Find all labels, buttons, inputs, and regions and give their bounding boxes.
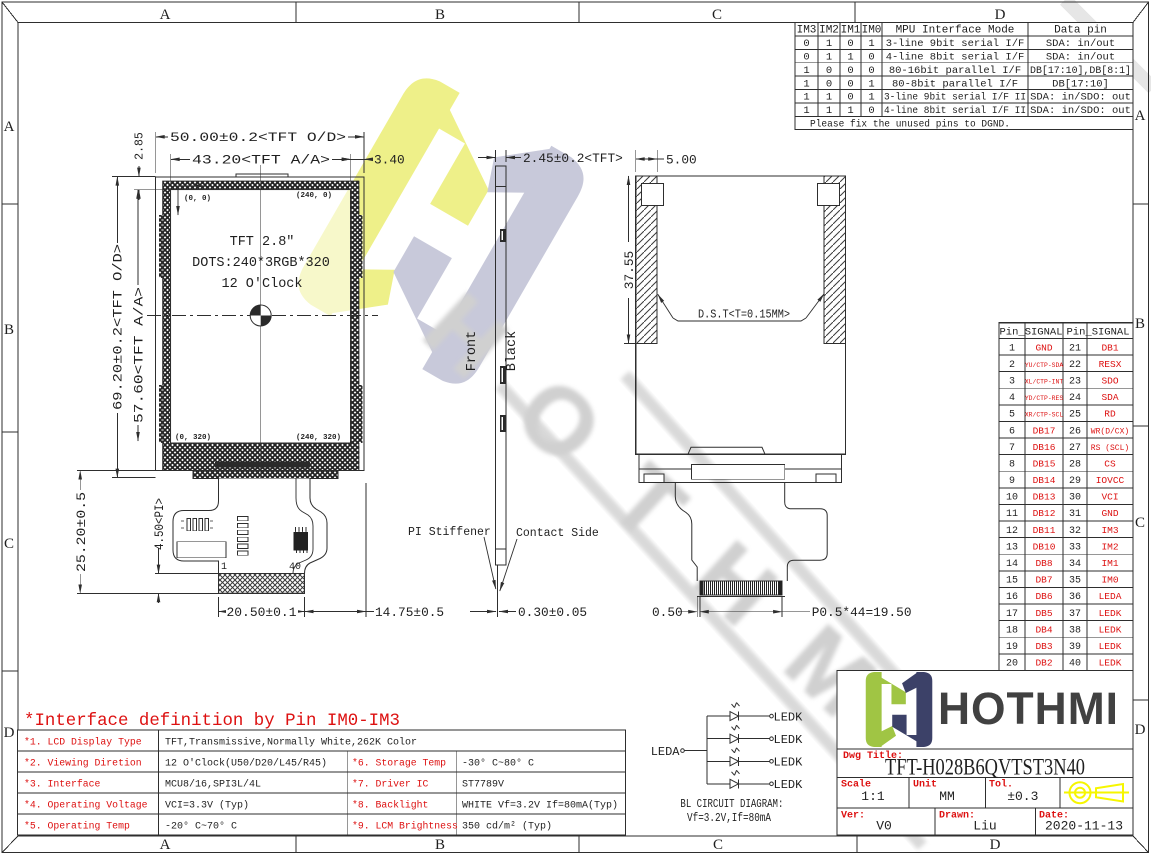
svg-text:HOTHMI: HOTHMI [938, 683, 1119, 734]
svg-text:YU/CTP-SDA: YU/CTP-SDA [1025, 362, 1064, 369]
svg-text:32: 32 [1069, 526, 1081, 537]
svg-text:12 O'Clock(U50/D20/L45/R45): 12 O'Clock(U50/D20/L45/R45) [165, 758, 327, 770]
svg-text:*3. Interface: *3. Interface [24, 779, 101, 790]
svg-text:1: 1 [847, 52, 853, 64]
svg-text:LEDK: LEDK [774, 756, 804, 770]
svg-text:1: 1 [826, 92, 832, 104]
svg-text:1: 1 [803, 78, 809, 90]
svg-text:DB[17:10]: DB[17:10] [1052, 78, 1109, 90]
svg-text:4: 4 [1009, 393, 1015, 404]
svg-text:A: A [160, 837, 171, 853]
svg-text:80-8bit parallel I/F: 80-8bit parallel I/F [892, 78, 1018, 90]
svg-text:LEDA: LEDA [651, 745, 681, 759]
svg-text:*9. LCM Brightness: *9. LCM Brightness [352, 821, 458, 832]
svg-text:0: 0 [803, 38, 809, 50]
svg-text:0.30±0.05: 0.30±0.05 [518, 605, 587, 620]
svg-text:XL/CTP-INT: XL/CTP-INT [1025, 378, 1064, 385]
svg-text:1: 1 [221, 562, 227, 573]
svg-text:1: 1 [847, 105, 853, 117]
svg-text:1: 1 [826, 52, 832, 64]
svg-text:(240, 0): (240, 0) [296, 192, 332, 200]
svg-text:D: D [4, 725, 15, 741]
svg-text:(240, 320): (240, 320) [296, 434, 341, 442]
svg-text:0: 0 [847, 78, 853, 90]
svg-text:VCI: VCI [1101, 492, 1118, 503]
svg-text:D.S.T<T=0.15MM>: D.S.T<T=0.15MM> [698, 309, 790, 322]
svg-text:1: 1 [868, 92, 874, 104]
svg-text:DB[17:10],DB[8:1]: DB[17:10],DB[8:1] [1030, 65, 1131, 77]
svg-text:27: 27 [1069, 443, 1081, 454]
svg-text:40: 40 [289, 562, 301, 573]
svg-text:57.60<TFT A/A>: 57.60<TFT A/A> [131, 287, 146, 423]
svg-text:MPU Interface Mode: MPU Interface Mode [896, 25, 1015, 37]
svg-text:V0: V0 [876, 819, 892, 834]
svg-text:Drawn:: Drawn: [939, 811, 975, 822]
svg-text:LEDK: LEDK [774, 733, 804, 747]
svg-text:Liu: Liu [973, 819, 996, 834]
svg-text:DB16: DB16 [1033, 442, 1056, 453]
svg-text:37.55: 37.55 [622, 251, 637, 289]
svg-text:14: 14 [1006, 559, 1018, 570]
svg-text:50.00±0.2<TFT O/D>: 50.00±0.2<TFT O/D> [170, 130, 346, 145]
svg-text:34: 34 [1069, 559, 1081, 570]
svg-text:26: 26 [1069, 426, 1081, 437]
svg-text:2.45±0.2<TFT>: 2.45±0.2<TFT> [523, 151, 623, 166]
svg-text:1: 1 [803, 92, 809, 104]
svg-text:Pin_SIGNAL: Pin_SIGNAL [1066, 327, 1129, 339]
svg-text:(0, 320): (0, 320) [175, 434, 211, 442]
svg-text:DB1: DB1 [1101, 342, 1118, 353]
svg-text:38: 38 [1069, 625, 1081, 636]
svg-text:(0, 0): (0, 0) [184, 195, 211, 203]
svg-text:DB15: DB15 [1033, 458, 1056, 469]
svg-text:40: 40 [1069, 659, 1081, 670]
svg-text:RS (SCL): RS (SCL) [1091, 444, 1129, 453]
svg-text:PI Stiffener: PI Stiffener [408, 526, 491, 539]
svg-text:*8. Backlight: *8. Backlight [352, 800, 428, 811]
svg-text:*6. Storage Temp: *6. Storage Temp [352, 758, 446, 769]
svg-text:6: 6 [1009, 426, 1015, 437]
svg-text:DB8: DB8 [1035, 558, 1052, 569]
svg-text:0: 0 [847, 38, 853, 50]
svg-text:12: 12 [1006, 526, 1018, 537]
svg-text:28: 28 [1069, 459, 1081, 470]
svg-text:Vf=3.2V,If=80mA: Vf=3.2V,If=80mA [687, 812, 771, 825]
svg-text:*Interface definition by Pin I: *Interface definition by Pin IM0-IM3 [24, 711, 400, 731]
svg-text:0: 0 [803, 52, 809, 64]
svg-text:15: 15 [1006, 576, 1018, 587]
svg-text:SDA: in/SDO: out: SDA: in/SDO: out [1030, 92, 1131, 104]
svg-text:WR(D/CX): WR(D/CX) [1091, 427, 1129, 436]
svg-text:SDA: in/SDO: out: SDA: in/SDO: out [1030, 105, 1131, 117]
svg-text:21: 21 [1069, 343, 1081, 354]
svg-text:4.50<PI>: 4.50<PI> [152, 498, 167, 550]
svg-text:SDA: in/out: SDA: in/out [1046, 52, 1115, 64]
svg-text:0: 0 [826, 78, 832, 90]
svg-text:SDO: SDO [1101, 375, 1118, 386]
svg-text:3: 3 [1009, 376, 1015, 387]
svg-text:TFT,Transmissive,Normally Whit: TFT,Transmissive,Normally White,262K Col… [165, 737, 417, 749]
svg-text:25.20±0.5: 25.20±0.5 [74, 492, 89, 572]
svg-text:-20° C~70° C: -20° C~70° C [165, 821, 237, 833]
svg-text:IOVCC: IOVCC [1096, 475, 1125, 486]
svg-text:ST7789V: ST7789V [462, 780, 504, 791]
svg-text:LEDK: LEDK [774, 710, 804, 724]
svg-text:SDA: SDA [1101, 392, 1118, 403]
svg-text:GND: GND [1101, 508, 1118, 519]
svg-text:VCI=3.3V (Typ): VCI=3.3V (Typ) [165, 800, 249, 812]
svg-text:8: 8 [1009, 459, 1015, 470]
svg-text:DB10: DB10 [1033, 541, 1056, 552]
svg-text:23: 23 [1069, 376, 1081, 387]
svg-text:IM2: IM2 [1101, 541, 1118, 552]
svg-text:350 cd/m² (Typ): 350 cd/m² (Typ) [462, 821, 552, 833]
svg-text:1: 1 [803, 105, 809, 117]
svg-text:4-line 8bit serial I/F: 4-line 8bit serial I/F [886, 52, 1025, 64]
svg-text:IM3: IM3 [797, 25, 817, 37]
svg-text:TFT 2.8″: TFT 2.8″ [230, 235, 295, 250]
svg-text:*7. Driver IC: *7. Driver IC [352, 779, 429, 790]
svg-text:1: 1 [826, 105, 832, 117]
svg-text:Black: Black [505, 331, 520, 372]
svg-text:1: 1 [826, 38, 832, 50]
svg-text:DB4: DB4 [1035, 624, 1052, 635]
svg-text:30: 30 [1069, 493, 1081, 504]
svg-text:SDA: in/out: SDA: in/out [1046, 38, 1115, 50]
svg-text:39: 39 [1069, 642, 1081, 653]
svg-text:Front: Front [465, 331, 480, 372]
svg-text:A: A [4, 119, 15, 135]
svg-text:13: 13 [1006, 542, 1018, 553]
svg-text:B: B [1135, 316, 1145, 332]
svg-text:DB2: DB2 [1035, 658, 1052, 669]
svg-text:18: 18 [1006, 625, 1018, 636]
svg-text:DB5: DB5 [1035, 608, 1052, 619]
svg-text:*1. LCD Display Type: *1. LCD Display Type [24, 737, 142, 748]
svg-text:43.20<TFT A/A>: 43.20<TFT A/A> [192, 153, 330, 168]
svg-text:YD/CTP-RES: YD/CTP-RES [1025, 395, 1064, 402]
svg-text:DB12: DB12 [1033, 508, 1056, 519]
svg-text:24: 24 [1069, 393, 1081, 404]
svg-text:5.00: 5.00 [666, 152, 697, 167]
svg-text:1: 1 [803, 65, 809, 77]
svg-text:0.50: 0.50 [652, 605, 683, 620]
svg-text:0: 0 [847, 92, 853, 104]
svg-text:DB13: DB13 [1033, 492, 1056, 503]
svg-text:2020-11-13: 2020-11-13 [1045, 819, 1123, 834]
svg-text:1: 1 [868, 78, 874, 90]
svg-text:LEDK: LEDK [1099, 641, 1122, 652]
svg-text:BL CIRCUIT DIAGRAM:: BL CIRCUIT DIAGRAM: [680, 798, 783, 811]
svg-text:35: 35 [1069, 576, 1081, 587]
svg-text:37: 37 [1069, 609, 1081, 620]
svg-text:3.40: 3.40 [374, 153, 405, 168]
svg-text:C: C [4, 536, 14, 552]
svg-text:Pin_SIGNAL: Pin_SIGNAL [999, 327, 1062, 339]
svg-text:MCU8/16,SPI3L/4L: MCU8/16,SPI3L/4L [165, 779, 261, 791]
svg-text:LEDA: LEDA [1099, 591, 1122, 602]
svg-text:DOTS:240*3RGB*320: DOTS:240*3RGB*320 [192, 256, 330, 271]
svg-text:19: 19 [1006, 642, 1018, 653]
svg-text:Contact Side: Contact Side [516, 527, 599, 540]
svg-text:D: D [995, 7, 1006, 23]
svg-text:*2. Viewing Diretion: *2. Viewing Diretion [24, 758, 142, 769]
svg-text:14.75±0.5: 14.75±0.5 [375, 605, 444, 620]
svg-text:9: 9 [1009, 476, 1015, 487]
svg-text:29: 29 [1069, 476, 1081, 487]
svg-text:B: B [4, 322, 14, 338]
svg-text:17: 17 [1006, 609, 1018, 620]
svg-text:XR/CTP-SCL: XR/CTP-SCL [1025, 412, 1064, 419]
svg-text:1: 1 [1009, 343, 1015, 354]
svg-text:C: C [713, 837, 723, 853]
svg-text:IM3: IM3 [1101, 525, 1118, 536]
svg-text:DB14: DB14 [1033, 475, 1056, 486]
svg-text:DB7: DB7 [1035, 575, 1052, 586]
svg-text:*5. Operating Temp: *5. Operating Temp [24, 821, 130, 832]
svg-text:±0.3: ±0.3 [1007, 789, 1038, 804]
svg-text:Data pin: Data pin [1054, 25, 1107, 37]
svg-text:22: 22 [1069, 360, 1081, 371]
svg-text:12 O'Clock: 12 O'Clock [221, 277, 302, 292]
svg-text:0: 0 [868, 105, 874, 117]
svg-text:IM1: IM1 [1101, 558, 1118, 569]
svg-text:LEDK: LEDK [1099, 624, 1122, 635]
svg-text:MM: MM [939, 789, 955, 804]
svg-text:*4. Operating Voltage: *4. Operating Voltage [24, 800, 148, 811]
svg-text:IM0: IM0 [862, 25, 882, 37]
svg-text:-30° C~80° C: -30° C~80° C [462, 758, 534, 770]
svg-text:11: 11 [1006, 509, 1018, 520]
svg-text:TFT-H028B6QVTST3N40: TFT-H028B6QVTST3N40 [885, 755, 1085, 780]
svg-text:36: 36 [1069, 592, 1081, 603]
svg-text:LEDK: LEDK [1099, 608, 1122, 619]
svg-text:A: A [1135, 108, 1146, 124]
svg-text:GND: GND [1035, 342, 1052, 353]
svg-text:2.85: 2.85 [134, 132, 147, 160]
svg-text:2: 2 [1009, 360, 1015, 371]
svg-text:DB11: DB11 [1033, 525, 1056, 536]
svg-text:0: 0 [868, 65, 874, 77]
svg-text:20: 20 [1006, 659, 1018, 670]
svg-text:C: C [1135, 515, 1145, 531]
svg-text:Unit: Unit [913, 779, 937, 791]
svg-text:7: 7 [1009, 443, 1015, 454]
svg-text:D: D [1135, 722, 1146, 738]
svg-text:RD: RD [1104, 409, 1116, 420]
svg-text:C: C [712, 7, 722, 23]
svg-text:CS: CS [1104, 458, 1116, 469]
svg-text:DB17: DB17 [1033, 425, 1056, 436]
svg-text:LEDK: LEDK [1099, 658, 1122, 669]
svg-text:RESX: RESX [1099, 359, 1122, 370]
svg-text:IM1: IM1 [841, 25, 861, 37]
svg-text:25: 25 [1069, 410, 1081, 421]
svg-text:WHITE Vf=3.2V If=80mA(Typ): WHITE Vf=3.2V If=80mA(Typ) [462, 800, 618, 812]
svg-text:DB6: DB6 [1035, 591, 1052, 602]
svg-text:33: 33 [1069, 542, 1081, 553]
svg-text:IM2: IM2 [819, 25, 839, 37]
svg-text:4-line 8bit serial I/F II: 4-line 8bit serial I/F II [884, 105, 1026, 117]
svg-text:0: 0 [868, 52, 874, 64]
svg-text:P0.5*44=19.50: P0.5*44=19.50 [812, 605, 912, 620]
svg-text:D: D [990, 837, 1001, 853]
svg-text:80-16bit parallel I/F: 80-16bit parallel I/F [889, 65, 1021, 77]
svg-text:3-line 9bit serial I/F: 3-line 9bit serial I/F [886, 38, 1025, 50]
svg-text:IM0: IM0 [1101, 575, 1118, 586]
svg-text:69.20±0.2<TFT O/D>: 69.20±0.2<TFT O/D> [111, 244, 126, 410]
svg-text:3-line 9bit serial I/F II: 3-line 9bit serial I/F II [884, 92, 1026, 104]
svg-text:LEDK: LEDK [774, 778, 804, 792]
svg-text:B: B [435, 837, 445, 853]
svg-text:0: 0 [826, 65, 832, 77]
svg-text:A: A [160, 7, 171, 23]
svg-text:1: 1 [868, 38, 874, 50]
svg-text:0: 0 [847, 65, 853, 77]
svg-text:B: B [435, 7, 445, 23]
svg-text:16: 16 [1006, 592, 1018, 603]
svg-text:10: 10 [1006, 493, 1018, 504]
svg-text:1:1: 1:1 [861, 789, 885, 804]
svg-text:31: 31 [1069, 509, 1081, 520]
svg-text:20.50±0.1: 20.50±0.1 [227, 605, 297, 620]
svg-text:DB3: DB3 [1035, 641, 1052, 652]
svg-text:Ver:: Ver: [841, 811, 865, 822]
svg-text:Please fix the unused pins to: Please fix the unused pins to DGND. [810, 119, 1010, 131]
svg-text:5: 5 [1009, 410, 1015, 421]
